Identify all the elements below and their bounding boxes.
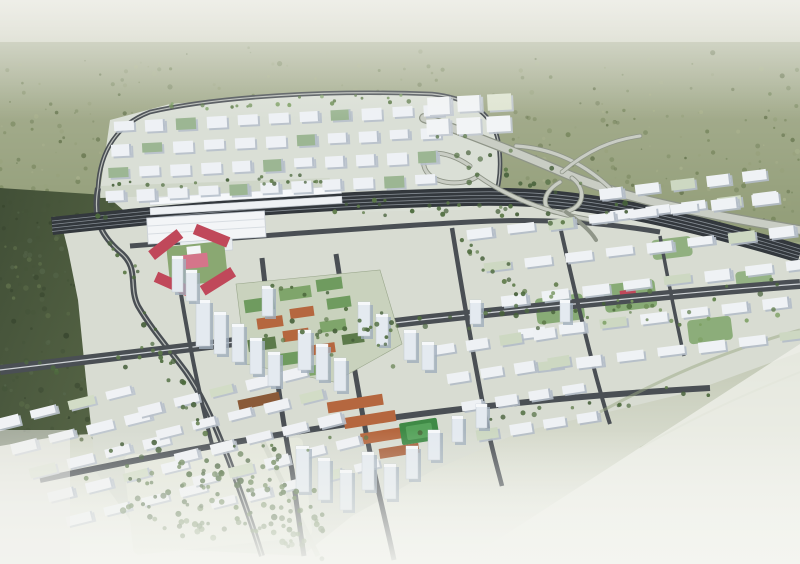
forest-dot	[680, 136, 682, 138]
tree	[150, 342, 154, 346]
forest-dot	[24, 267, 28, 271]
tree	[196, 418, 199, 421]
forest-dot	[47, 340, 51, 344]
tree	[290, 174, 293, 177]
tree	[191, 402, 197, 408]
tree	[123, 365, 128, 370]
tree	[466, 180, 472, 186]
forest-dot	[661, 184, 664, 187]
tree	[181, 405, 186, 410]
forest-dot	[10, 121, 15, 126]
tree	[160, 359, 164, 363]
forest-dot	[45, 313, 50, 318]
tree	[669, 319, 673, 323]
tree	[151, 349, 155, 353]
forest-dot	[4, 384, 6, 386]
forest-dot	[616, 121, 620, 125]
forest-dot	[3, 131, 6, 134]
tree	[542, 320, 546, 324]
tower-roof	[560, 300, 570, 303]
tree	[168, 350, 172, 354]
forest-dot	[66, 416, 68, 418]
forest-dot	[38, 387, 44, 393]
tower	[250, 338, 262, 374]
tree	[286, 180, 290, 184]
forest-dot	[85, 417, 90, 422]
tree	[448, 315, 452, 319]
forest-dot	[38, 262, 42, 266]
tower-roof	[452, 416, 463, 419]
forest-dot	[518, 137, 520, 139]
forest-dot	[10, 289, 13, 292]
forest-dot	[31, 171, 33, 173]
forest-dot	[5, 347, 9, 351]
tree	[681, 392, 686, 397]
tree	[554, 282, 559, 287]
tree	[417, 316, 422, 321]
forest-dot	[759, 160, 762, 163]
tree	[264, 334, 268, 338]
tree	[226, 178, 230, 182]
tree	[507, 262, 511, 266]
building	[263, 159, 284, 172]
tree	[603, 321, 607, 325]
tower	[404, 330, 416, 360]
tree	[138, 355, 142, 359]
building	[139, 165, 159, 176]
tree	[145, 183, 149, 187]
forest-dot	[92, 120, 94, 122]
forest-dot	[39, 268, 45, 274]
tree	[605, 211, 609, 215]
building	[198, 185, 218, 195]
tree	[372, 198, 377, 203]
tree	[588, 401, 592, 405]
tower-roof	[404, 330, 416, 333]
tree	[549, 295, 553, 299]
tree	[725, 285, 728, 288]
forest-dot	[631, 184, 634, 187]
forest-dot	[50, 427, 54, 431]
forest-dot	[57, 124, 62, 129]
forest-dot	[55, 234, 60, 239]
tree	[315, 333, 319, 337]
forest-dot	[14, 266, 17, 269]
forest-dot	[643, 130, 648, 135]
forest-dot	[10, 265, 14, 269]
tree	[771, 307, 776, 312]
tree	[385, 335, 389, 339]
tree	[112, 184, 115, 187]
tree	[315, 180, 319, 184]
tree	[665, 386, 668, 389]
tree	[423, 324, 428, 329]
forest-dot	[684, 157, 687, 160]
tree	[351, 339, 354, 342]
forest-dot	[37, 284, 41, 288]
building	[297, 134, 318, 146]
tree	[279, 286, 284, 291]
tree	[141, 322, 147, 328]
tree	[514, 292, 518, 296]
forest-dot	[756, 151, 761, 156]
tree	[745, 318, 749, 322]
tree	[158, 351, 163, 356]
forest-dot	[609, 157, 614, 162]
forest-dot	[40, 292, 45, 297]
tree	[521, 410, 526, 415]
tree	[129, 181, 132, 184]
building	[322, 179, 343, 190]
tree	[380, 311, 383, 314]
tree	[644, 304, 649, 309]
tree	[117, 182, 121, 186]
tree	[631, 300, 634, 303]
forest-dot	[656, 170, 658, 172]
forest-dot	[695, 172, 698, 175]
tree	[561, 220, 565, 224]
forest-dot	[37, 226, 40, 229]
tree	[502, 279, 507, 284]
forest-dot	[1, 125, 3, 127]
tree	[325, 333, 329, 337]
tree	[143, 311, 146, 314]
building	[235, 137, 256, 148]
forest-dot	[707, 139, 710, 142]
tree	[537, 406, 541, 410]
tree	[171, 359, 176, 364]
forest-dot	[12, 296, 15, 299]
tower-roof	[476, 404, 487, 407]
forest-dot	[512, 138, 515, 141]
tower	[196, 300, 210, 346]
tree	[616, 304, 621, 309]
tree	[123, 271, 127, 275]
tree	[618, 403, 622, 407]
building	[328, 132, 348, 143]
tree	[324, 317, 329, 322]
forest-dot	[60, 129, 64, 133]
tree	[107, 241, 112, 246]
tree	[369, 326, 372, 329]
building	[167, 187, 188, 199]
tree	[362, 211, 365, 214]
tower-roof	[470, 300, 481, 303]
building	[204, 139, 224, 150]
tree	[115, 253, 119, 257]
tree	[410, 209, 415, 214]
forest-dot	[679, 167, 682, 170]
tree	[551, 310, 555, 314]
tree	[427, 204, 431, 208]
forest-dot	[38, 254, 42, 258]
forest-dot	[2, 205, 5, 208]
tree	[586, 316, 589, 319]
forest-dot	[566, 132, 571, 137]
tree	[602, 302, 606, 306]
tree	[467, 327, 471, 331]
forest-dot	[12, 379, 15, 382]
forest-dot	[40, 297, 45, 302]
forest-dot	[15, 376, 18, 379]
tree	[319, 180, 323, 184]
tree	[707, 317, 711, 321]
tower	[298, 330, 311, 370]
forest-dot	[31, 128, 34, 131]
tree	[504, 168, 508, 172]
tree	[615, 203, 618, 206]
tree	[389, 320, 394, 325]
forest-dot	[84, 167, 88, 171]
tree	[103, 215, 108, 220]
forest-dot	[31, 186, 36, 191]
tree	[333, 329, 338, 334]
tree	[258, 178, 261, 181]
forest-dot	[543, 179, 546, 182]
forest-dot	[19, 401, 25, 407]
building	[387, 152, 408, 165]
tree	[503, 207, 507, 211]
tower	[376, 314, 388, 345]
forest-dot	[41, 169, 43, 171]
forest-dot	[783, 198, 786, 201]
forest-dot	[734, 188, 739, 193]
tree	[467, 166, 472, 171]
forest-dot	[22, 341, 25, 344]
tree	[384, 343, 387, 346]
tree	[707, 393, 711, 397]
forest-dot	[748, 162, 751, 165]
tree	[396, 324, 399, 327]
tree	[389, 328, 393, 332]
tree	[304, 181, 307, 184]
tower	[470, 300, 481, 324]
tree	[624, 210, 628, 214]
tree	[549, 166, 554, 171]
forest-dot	[17, 212, 19, 214]
tree	[532, 412, 537, 417]
building	[353, 177, 374, 189]
forest-dot	[648, 126, 650, 128]
tree	[483, 311, 488, 316]
forest-dot	[741, 183, 746, 188]
tree	[440, 212, 445, 217]
tree	[180, 185, 183, 188]
forest-dot	[24, 397, 26, 399]
forest-dot	[18, 283, 21, 286]
tower-roof	[422, 342, 434, 345]
forest-dot	[79, 387, 83, 391]
building	[114, 121, 134, 131]
tree	[457, 203, 461, 207]
tree	[659, 308, 662, 311]
tree	[95, 213, 100, 218]
tree	[500, 214, 504, 218]
forest-dot	[30, 327, 33, 330]
forest-dot	[590, 156, 595, 161]
forest-dot	[775, 161, 778, 164]
building	[418, 151, 439, 164]
forest-dot	[27, 238, 32, 243]
tree	[467, 249, 472, 254]
building	[229, 184, 250, 196]
building	[136, 189, 157, 202]
tree	[300, 329, 305, 334]
building	[142, 142, 162, 152]
forest-dot	[49, 221, 52, 224]
tower	[334, 358, 346, 391]
building	[356, 154, 377, 166]
forest-dot	[783, 206, 785, 208]
forest-dot	[28, 212, 33, 217]
tree	[488, 309, 491, 312]
tree	[303, 293, 307, 297]
forest-dot	[42, 144, 45, 147]
forest-dot	[49, 399, 53, 403]
forest-dot	[597, 170, 599, 172]
forest-dot	[625, 180, 629, 184]
tree	[436, 135, 440, 139]
forest-dot	[63, 333, 69, 339]
tree	[627, 304, 633, 310]
tree	[357, 205, 360, 208]
tower	[316, 344, 328, 380]
building	[359, 131, 380, 143]
tower	[476, 404, 487, 428]
tree	[475, 173, 480, 178]
tree	[546, 211, 551, 216]
building	[415, 174, 435, 184]
tree	[650, 304, 654, 308]
forest-dot	[16, 162, 18, 164]
tree	[342, 326, 347, 331]
tower	[172, 256, 183, 292]
forest-dot	[67, 279, 69, 281]
forest-dot	[99, 151, 102, 154]
building	[201, 162, 222, 174]
tree	[509, 149, 513, 153]
forest-dot	[711, 150, 715, 154]
tree	[140, 346, 143, 349]
tree	[24, 360, 28, 364]
forest-dot	[66, 312, 70, 316]
forest-dot	[11, 319, 16, 324]
tree	[332, 209, 337, 214]
forest-dot	[17, 158, 21, 162]
building	[111, 144, 132, 157]
tree	[326, 291, 329, 294]
tree	[290, 286, 293, 289]
tree	[477, 203, 482, 208]
tree	[548, 221, 553, 226]
forest-dot	[526, 176, 530, 180]
forest-dot	[42, 287, 46, 291]
forest-dot	[59, 140, 62, 143]
tower	[422, 342, 434, 370]
building	[266, 136, 287, 148]
tree	[698, 337, 703, 342]
tree	[378, 203, 382, 207]
tree	[775, 313, 780, 318]
tree	[383, 199, 386, 202]
tree	[496, 209, 501, 214]
forest-dot	[797, 159, 799, 161]
forest-dot	[22, 211, 25, 214]
tree	[532, 181, 537, 186]
forest-dot	[6, 283, 11, 288]
tree	[769, 278, 773, 282]
tree	[50, 365, 55, 370]
forest-dot	[76, 176, 80, 180]
forest-dot	[641, 148, 643, 150]
forest-dot	[753, 208, 756, 211]
tower-roof	[316, 344, 328, 347]
tree	[499, 205, 502, 208]
tree	[270, 284, 274, 288]
tree	[362, 327, 366, 331]
tree	[482, 269, 485, 272]
tree	[446, 201, 449, 204]
tree	[712, 298, 716, 302]
masterplan-rendering: Aerial bird's-eye architectural renderin…	[0, 0, 800, 564]
forest-dot	[61, 349, 66, 354]
forest-dot	[542, 137, 545, 140]
forest-dot	[790, 138, 794, 142]
tree	[116, 355, 120, 359]
tree	[646, 318, 649, 321]
tree	[551, 291, 555, 295]
forest-dot	[615, 177, 617, 179]
tree	[545, 179, 551, 185]
tree	[374, 322, 379, 327]
tree	[537, 309, 540, 312]
tree	[377, 344, 380, 347]
tree	[501, 415, 506, 420]
tree	[181, 381, 186, 386]
forest-dot	[726, 158, 728, 160]
forest-dot	[44, 184, 48, 188]
tower-roof	[172, 256, 183, 259]
tree	[134, 264, 137, 267]
tree	[112, 248, 115, 251]
tree	[617, 299, 620, 302]
forest-dot	[23, 254, 28, 259]
forest-dot	[649, 145, 651, 147]
forest-dot	[9, 389, 12, 392]
forest-dot	[74, 142, 77, 145]
tree	[758, 291, 764, 297]
scene-container: Aerial bird's-eye architectural renderin…	[0, 0, 800, 564]
tree	[629, 311, 632, 314]
tree	[466, 150, 471, 155]
tree	[460, 238, 464, 242]
tree	[554, 191, 558, 195]
forest-dot	[791, 210, 794, 213]
tree	[463, 134, 467, 138]
tree	[579, 182, 582, 185]
tree	[622, 200, 628, 206]
forest-dot	[36, 222, 38, 224]
tree	[515, 212, 519, 216]
tree	[476, 250, 480, 254]
forest-dot	[53, 273, 59, 279]
forest-dot	[81, 153, 86, 158]
building	[170, 164, 191, 176]
forest-dot	[611, 165, 616, 170]
forest-dot	[667, 154, 671, 158]
building	[105, 190, 125, 201]
tree	[573, 309, 577, 313]
